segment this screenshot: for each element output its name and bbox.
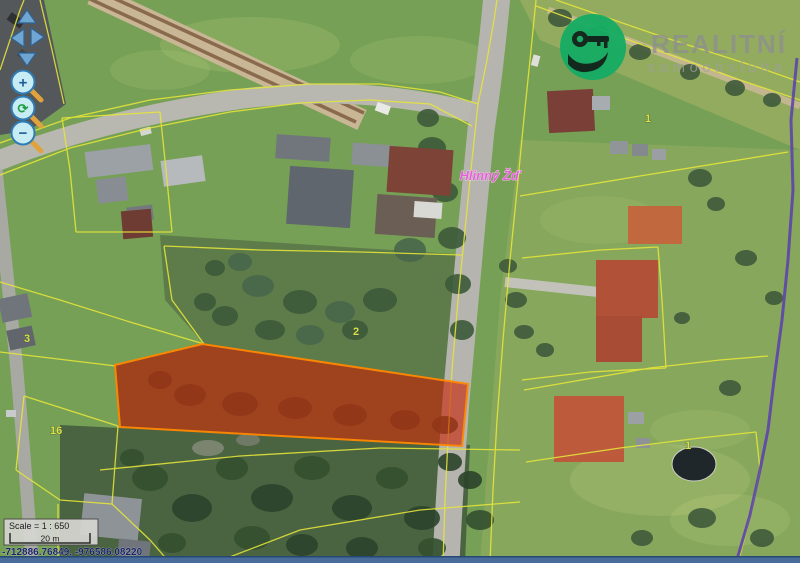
zoom-out-icon: − <box>19 125 28 142</box>
bottom-bar <box>0 556 800 563</box>
scale-indicator: Scale = 1 : 650 20 m <box>4 519 98 545</box>
pond <box>672 447 716 481</box>
parcel-label-2: 2 <box>353 326 359 338</box>
logo-title: REALITNÍ <box>651 29 787 59</box>
parcel-label-1a: 1 <box>645 113 651 125</box>
logo-subtitle: samoobsluha <box>648 59 787 76</box>
aerial-imagery <box>0 0 800 563</box>
scalebar-label: 20 m <box>41 534 60 544</box>
parcel-label-1b: 1 <box>685 440 691 452</box>
parcel-label-3: 3 <box>24 333 30 345</box>
parcel-label-16: 16 <box>50 425 62 437</box>
zoom-in-icon: + <box>19 75 28 92</box>
map-viewer: 2 16 1 1 3 Hlinný Žď REALITNÍ samoobsluh… <box>0 0 800 563</box>
scale-text: Scale = 1 : 650 <box>9 521 69 531</box>
aerial-map-canvas[interactable]: 2 16 1 1 3 Hlinný Žď REALITNÍ samoobsluh… <box>0 0 800 563</box>
refresh-icon: ⟳ <box>18 101 29 116</box>
town-label: Hlinný Žď <box>460 168 522 183</box>
